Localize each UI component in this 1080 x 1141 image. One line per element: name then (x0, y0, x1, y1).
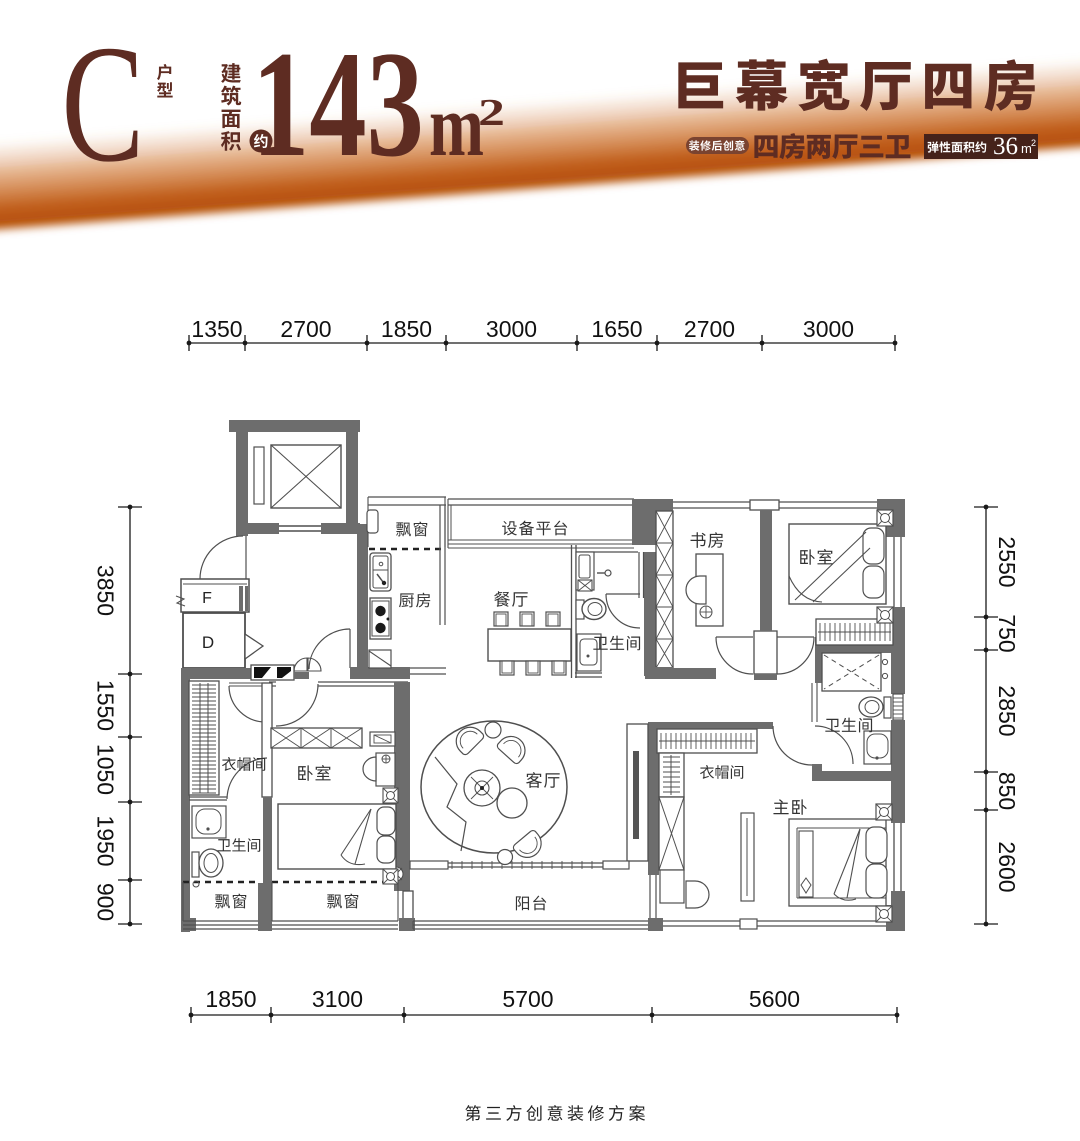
svg-text:143: 143 (252, 21, 424, 189)
svg-text:2850: 2850 (994, 685, 1020, 736)
svg-text:2600: 2600 (994, 841, 1020, 892)
svg-text:3850: 3850 (93, 565, 119, 616)
svg-text:5700: 5700 (502, 986, 553, 1012)
svg-text:2: 2 (478, 92, 505, 134)
svg-text:1550: 1550 (93, 680, 119, 731)
svg-text:2700: 2700 (684, 316, 735, 342)
svg-text:F: F (202, 590, 212, 607)
svg-text:36: 36 (993, 133, 1018, 160)
svg-text:900: 900 (93, 883, 119, 921)
svg-text:1050: 1050 (93, 744, 119, 795)
svg-text:1650: 1650 (591, 316, 642, 342)
svg-text:D: D (202, 633, 214, 652)
svg-text:5600: 5600 (749, 986, 800, 1012)
svg-text:750: 750 (994, 614, 1020, 652)
svg-text:1850: 1850 (381, 316, 432, 342)
svg-text:m: m (429, 77, 484, 174)
svg-text:3000: 3000 (486, 316, 537, 342)
svg-text:1950: 1950 (93, 815, 119, 866)
svg-text:3100: 3100 (312, 986, 363, 1012)
svg-text:1850: 1850 (205, 986, 256, 1012)
svg-text:2700: 2700 (280, 316, 331, 342)
svg-text:850: 850 (994, 772, 1020, 810)
svg-text:C: C (61, 10, 144, 196)
svg-text:2: 2 (1031, 138, 1036, 148)
svg-text:3000: 3000 (803, 316, 854, 342)
svg-text:1350: 1350 (191, 316, 242, 342)
svg-text:2550: 2550 (994, 536, 1020, 587)
